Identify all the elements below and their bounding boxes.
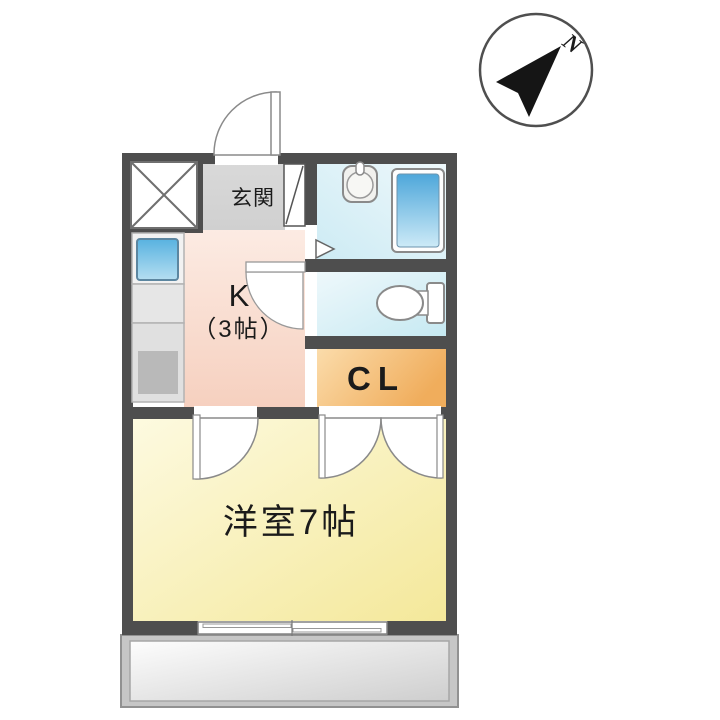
toilet-door-gap [305, 272, 317, 336]
kitchen-door-gap [194, 406, 257, 419]
shoe-cabinet-icon [284, 164, 305, 226]
kitchen-counter [132, 233, 184, 402]
wall-segment [257, 407, 319, 419]
wall-segment [122, 621, 198, 635]
kitchen-size-label: （3帖） [192, 316, 285, 343]
window-sash [293, 629, 381, 633]
wall-segment [305, 153, 317, 225]
stove-icon [138, 351, 178, 394]
entrance-label: 玄関 [231, 187, 275, 210]
bathtub-icon [392, 169, 444, 252]
toilet-bowl [377, 286, 423, 320]
compass: N [480, 14, 592, 126]
door-leaf [437, 415, 443, 478]
kitchen-label: K [229, 278, 250, 313]
kitchen-sink-icon [137, 239, 178, 280]
bath-sink-icon [343, 162, 377, 202]
toilet-tank [427, 283, 444, 323]
wall-segment [305, 336, 446, 349]
wall-segment [387, 621, 457, 635]
wall-segment [278, 153, 457, 164]
balcony-floor [130, 641, 449, 701]
counter-mid [132, 284, 184, 323]
window-sash [203, 624, 291, 628]
wall-segment [133, 407, 194, 419]
door-leaf [246, 262, 305, 272]
balcony [121, 635, 458, 707]
door-leaf [319, 415, 325, 478]
closet-door-gap [319, 406, 441, 419]
toilet-icon [377, 283, 444, 323]
closet-label: CL [347, 360, 405, 397]
western-room-label: 洋室7帖 [223, 503, 359, 542]
wall-segment [446, 153, 457, 635]
door-leaf [193, 415, 200, 479]
wall-segment [305, 259, 446, 272]
window-slider [198, 620, 387, 636]
floorplan-canvas: 玄関 K （3帖） CL 洋室7帖 N [0, 0, 720, 720]
pipe-space-box [131, 162, 197, 228]
door-leaf [271, 92, 280, 155]
floorplan-page: 玄関 K （3帖） CL 洋室7帖 N [0, 0, 720, 720]
